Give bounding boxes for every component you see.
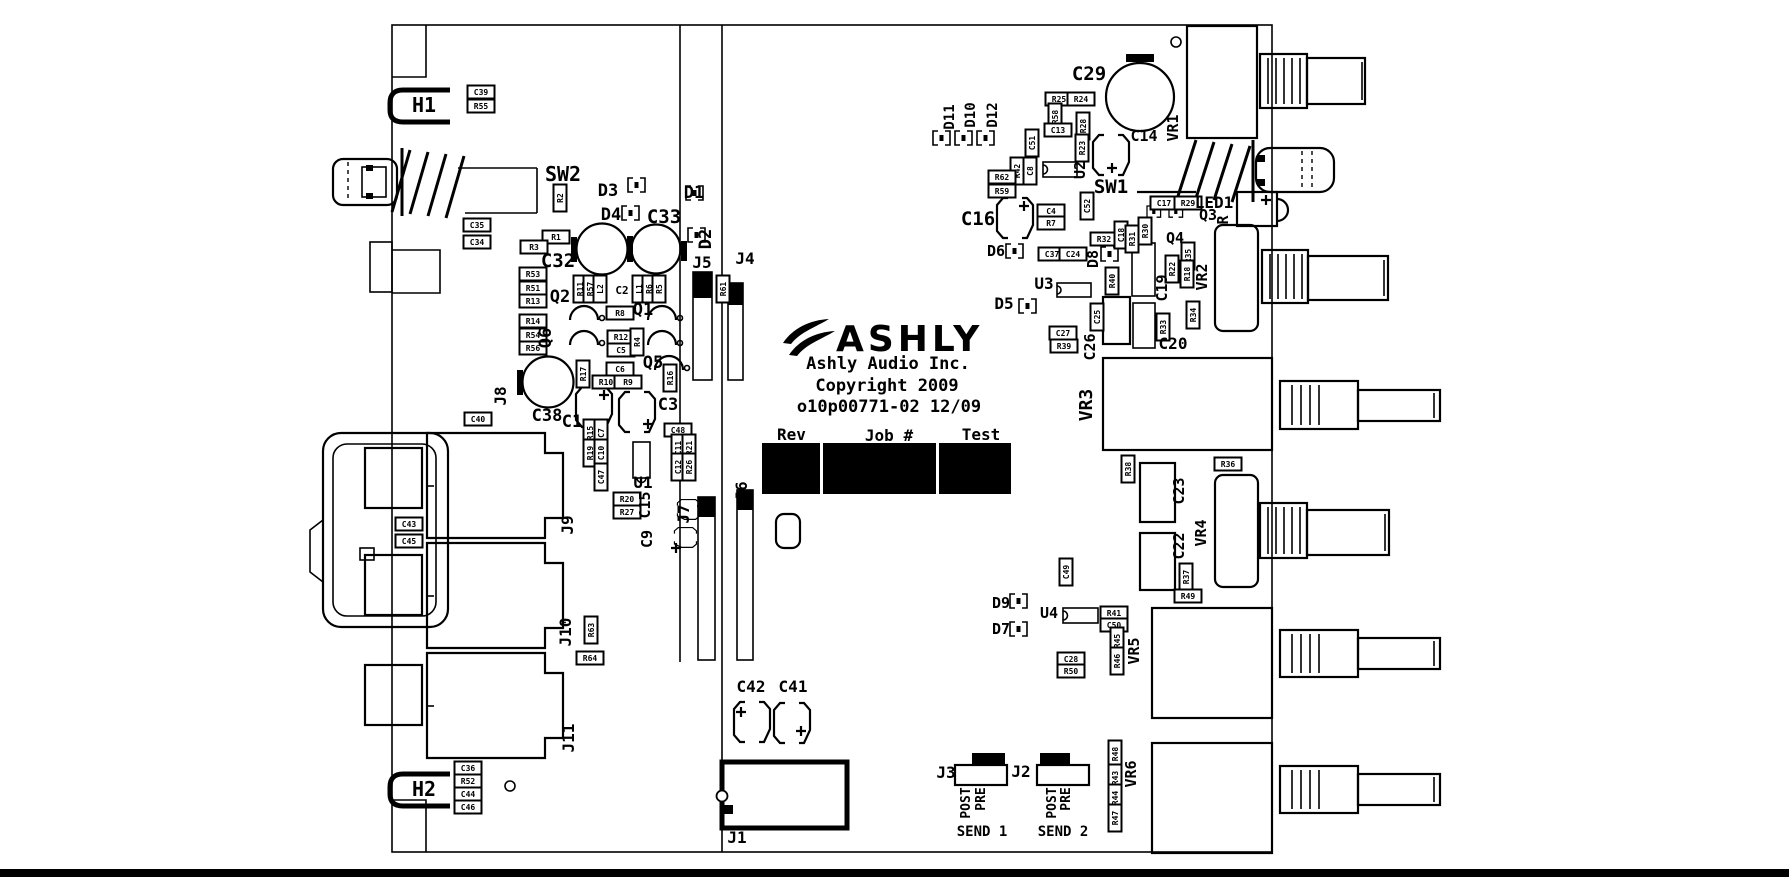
board-edge-slot <box>370 242 440 293</box>
smd-label-r23: R23 <box>1076 135 1089 162</box>
ref-label-d3: D3 <box>598 181 618 201</box>
svg-text:R45: R45 <box>1113 634 1122 649</box>
connector-j1 <box>717 762 848 828</box>
smd-label-l2: L2 <box>594 276 607 303</box>
svg-text:R34: R34 <box>1189 308 1198 323</box>
capacitor-c16-footprint <box>997 198 1033 238</box>
svg-text:R39: R39 <box>1057 342 1072 351</box>
ref-label-c42: C42 <box>737 677 766 696</box>
ref-label-pre: PRE <box>974 787 989 810</box>
svg-text:C40: C40 <box>471 415 486 424</box>
smd-label-r46: R46 <box>1111 648 1124 675</box>
svg-text:R61: R61 <box>719 282 728 297</box>
svg-text:R29: R29 <box>1181 199 1196 208</box>
svg-text:C47: C47 <box>597 470 606 485</box>
smd-label-r17: R17 <box>577 361 590 388</box>
svg-text:C37: C37 <box>1045 250 1060 259</box>
smd-label-r16: R16 <box>664 365 677 392</box>
svg-text:C4: C4 <box>1046 207 1056 216</box>
ref-label-c22: C22 <box>1170 532 1188 559</box>
svg-text:R18: R18 <box>1183 267 1192 282</box>
svg-text:C39: C39 <box>474 88 489 97</box>
ref-label-d4: D4 <box>601 205 621 225</box>
capacitor-c14-footprint <box>1093 135 1129 175</box>
ref-label-c1: C1 <box>562 412 582 432</box>
svg-text:R2: R2 <box>556 193 565 203</box>
svg-text:R37: R37 <box>1182 570 1191 585</box>
svg-text:R40: R40 <box>1108 274 1117 289</box>
svg-text:C49: C49 <box>1062 565 1071 580</box>
svg-text:R14: R14 <box>526 317 541 326</box>
ref-label-q5: Q5 <box>643 353 663 373</box>
svg-text:R63: R63 <box>587 623 596 638</box>
capacitor-c38 <box>517 357 574 408</box>
smd-label-r30: R30 <box>1139 218 1152 245</box>
ref-label-vr3: VR3 <box>1076 389 1097 422</box>
smd-label-r49: R49 <box>1175 590 1202 603</box>
svg-text:C6: C6 <box>615 365 625 374</box>
smd-label-r51: R51 <box>520 282 547 295</box>
ref-label-c38: C38 <box>532 406 563 426</box>
ref-label-c29: C29 <box>1072 63 1106 85</box>
svg-text:R23: R23 <box>1078 141 1087 156</box>
smd-label-c49: C49 <box>1060 559 1073 586</box>
svg-text:R27: R27 <box>620 508 635 517</box>
smd-label-r47: R47 <box>1109 805 1122 832</box>
ref-label-d8: D8 <box>1084 250 1102 268</box>
led1-footprint <box>1237 192 1288 226</box>
ref-label-vr1: VR1 <box>1164 114 1182 141</box>
ref-label-u2: U2 <box>1071 161 1089 179</box>
smd-label-c43: C43 <box>396 518 423 531</box>
ref-label-c16: C16 <box>961 208 995 230</box>
smd-label-r14: R14 <box>520 315 547 328</box>
smd-label-r40: R40 <box>1106 268 1119 295</box>
svg-text:R26: R26 <box>685 460 694 475</box>
svg-text:R22: R22 <box>1168 262 1177 277</box>
ref-label-c41: C41 <box>779 677 808 696</box>
connector-j7 <box>698 497 715 660</box>
ref-label-c19: C19 <box>1153 274 1171 301</box>
svg-text:R13: R13 <box>526 297 541 306</box>
svg-text:C10: C10 <box>597 446 606 461</box>
jumper-j3 <box>955 753 1007 785</box>
ashly-chevron-logo-icon <box>783 319 835 356</box>
ref-label-c32: C32 <box>541 250 575 272</box>
ref-label-j11: J11 <box>559 724 578 753</box>
ref-label-q6: Q6 <box>536 328 556 348</box>
ref-label-j9: J9 <box>558 515 577 534</box>
smd-label-r64: R64 <box>577 652 604 665</box>
svg-text:R64: R64 <box>583 654 598 663</box>
svg-text:R33: R33 <box>1159 320 1168 335</box>
svg-text:R31: R31 <box>1128 232 1137 247</box>
svg-text:R38: R38 <box>1124 462 1133 477</box>
ref-label-d2: D2 <box>696 229 716 249</box>
smd-label-c39: C39 <box>468 86 495 99</box>
smd-label-r39: R39 <box>1051 340 1078 353</box>
smd-label-c52: C52 <box>1081 193 1094 220</box>
smd-label-c27: C27 <box>1050 327 1077 340</box>
toggle-switch-sw2 <box>333 148 537 218</box>
smd-label-r18: R18 <box>1181 261 1194 288</box>
capacitor-c41-footprint <box>774 703 810 743</box>
ref-label-vr6: VR6 <box>1122 760 1140 787</box>
ref-label-send-2: SEND 2 <box>1038 824 1089 840</box>
ic-u3 <box>1057 283 1091 297</box>
ref-label-d10: D10 <box>963 102 979 127</box>
ref-label-j5: J5 <box>692 253 711 272</box>
ref-label-j2: J2 <box>1011 762 1030 781</box>
svg-text:R10: R10 <box>599 378 614 387</box>
smd-label-c35: C35 <box>464 219 491 232</box>
smd-label-r59: R59 <box>989 185 1016 198</box>
ref-label-u3: U3 <box>1034 274 1053 293</box>
svg-text:R20: R20 <box>620 495 635 504</box>
svg-text:R59: R59 <box>995 187 1010 196</box>
svg-text:R44: R44 <box>1111 791 1120 806</box>
ref-label-d11: D11 <box>942 104 958 129</box>
bottom-border-bar <box>0 869 1789 877</box>
svg-text:L2: L2 <box>596 284 605 294</box>
company-text: Ashly Audio Inc. <box>806 354 970 374</box>
smd-label-c36: C36 <box>455 762 482 775</box>
svg-text:C28: C28 <box>1064 655 1079 664</box>
smd-label-c10: C10 <box>595 440 608 467</box>
ref-label-sw2: SW2 <box>545 162 581 186</box>
smd-label-c17: C17 <box>1151 197 1178 210</box>
svg-text:R46: R46 <box>1113 654 1122 669</box>
svg-text:R49: R49 <box>1181 592 1196 601</box>
ref-label-j3: J3 <box>936 763 955 782</box>
ref-label-c9: C9 <box>638 530 656 548</box>
svg-text:C45: C45 <box>402 537 417 546</box>
smd-label-r61: R61 <box>717 276 730 303</box>
smd-label-r2: R2 <box>554 185 567 212</box>
svg-text:C17: C17 <box>1157 199 1172 208</box>
ref-label-q4: Q4 <box>1166 229 1184 247</box>
smd-label-r26: R26 <box>683 454 696 481</box>
connector-j5 <box>693 272 712 380</box>
pot-vr4 <box>1215 475 1389 587</box>
smd-label-r31: R31 <box>1126 226 1139 253</box>
ic-u4 <box>1063 608 1098 623</box>
svg-text:C5: C5 <box>616 346 626 355</box>
smd-label-r50: R50 <box>1058 665 1085 678</box>
capacitor-c9-footprint <box>671 528 696 553</box>
pcb-assembly-drawing: { "logo": { "brand": "ASHLY", "company":… <box>0 0 1789 884</box>
svg-text:R9: R9 <box>623 378 633 387</box>
rev-job-test-fill-boxes <box>762 443 1011 548</box>
svg-text:R52: R52 <box>461 777 476 786</box>
smd-label-r55: R55 <box>468 100 495 113</box>
jack-j10 <box>365 543 563 648</box>
svg-text:R3: R3 <box>529 243 539 252</box>
ref-label-d7: D7 <box>992 620 1010 638</box>
svg-text:R36: R36 <box>1221 460 1236 469</box>
smd-label-c44: C44 <box>455 788 482 801</box>
svg-text:R41: R41 <box>1107 609 1122 618</box>
svg-text:R50: R50 <box>1064 667 1079 676</box>
ref-label-vr2: VR2 <box>1193 263 1211 290</box>
svg-text:C8: C8 <box>1026 166 1035 176</box>
svg-text:R58: R58 <box>1051 110 1060 125</box>
svg-text:R51: R51 <box>526 284 541 293</box>
smd-label-r37: R37 <box>1180 564 1193 591</box>
svg-text:C43: C43 <box>402 520 417 529</box>
svg-text:R17: R17 <box>579 367 588 382</box>
svg-text:R1: R1 <box>551 233 561 242</box>
smd-label-r63: R63 <box>585 617 598 644</box>
ref-label-c26: C26 <box>1081 333 1099 360</box>
smd-label-c46: C46 <box>455 801 482 814</box>
smd-label-r8: R8 <box>607 307 634 320</box>
smd-label-r13: R13 <box>520 295 547 308</box>
svg-text:C36: C36 <box>461 764 476 773</box>
connector-j6 <box>737 490 753 660</box>
ref-label-j1: J1 <box>727 828 746 847</box>
svg-text:R5: R5 <box>655 284 664 294</box>
pot-vr5 <box>1152 608 1440 718</box>
ref-label-q2: Q2 <box>550 287 570 307</box>
board-outline <box>392 25 1272 852</box>
smd-label-c34: C34 <box>464 236 491 249</box>
smd-label-c6: C6 <box>607 363 634 376</box>
svg-text:R16: R16 <box>666 371 675 386</box>
smd-label-r32: R32 <box>1091 233 1118 246</box>
ref-label-d5: D5 <box>994 294 1013 313</box>
ref-label-j7: J7 <box>674 504 693 523</box>
svg-text:C52: C52 <box>1083 199 1092 214</box>
ref-label-send-1: SEND 1 <box>957 824 1008 840</box>
ref-label-d6: D6 <box>987 242 1005 260</box>
smd-label-r52: R52 <box>455 775 482 788</box>
ref-label-d9: D9 <box>992 594 1010 612</box>
ref-label-c15: C15 <box>636 491 654 518</box>
smd-label-c24: C24 <box>1060 248 1087 261</box>
svg-text:R48: R48 <box>1111 747 1120 762</box>
ref-label-c2: C2 <box>615 284 628 297</box>
svg-text:R53: R53 <box>526 270 541 279</box>
ref-label-j10: J10 <box>556 618 575 647</box>
smd-label-c40: C40 <box>465 413 492 426</box>
ref-label-post: POST <box>1045 787 1060 818</box>
capacitor-c3-footprint <box>619 392 655 432</box>
ref-label-pre: PRE <box>1059 787 1074 810</box>
ref-label-u1: U1 <box>633 473 652 492</box>
toggle-switch-sw1 <box>1137 140 1334 202</box>
ref-label-d12: D12 <box>985 102 1001 127</box>
rev-field-label: Rev <box>777 425 806 444</box>
ref-label-c14: C14 <box>1130 127 1157 145</box>
ref-label-q1: Q1 <box>633 300 653 320</box>
ref-label-j8: J8 <box>491 386 510 405</box>
part-number-text: o10p00771-02 12/09 <box>797 397 981 417</box>
jack-j11 <box>365 653 563 758</box>
capacitor-c42-footprint <box>734 702 770 742</box>
ashly-logo-block: ASHLY Ashly Audio Inc. Copyright 2009 o1… <box>777 319 1000 445</box>
svg-text:C44: C44 <box>461 790 476 799</box>
smd-label-r36: R36 <box>1215 458 1242 471</box>
ref-label-c20: C20 <box>1159 334 1188 353</box>
ref-label-j4: J4 <box>735 249 754 268</box>
svg-text:R28: R28 <box>1079 119 1088 134</box>
ref-label-h2: H2 <box>412 777 436 801</box>
svg-text:C46: C46 <box>461 803 476 812</box>
smd-label-c8: C8 <box>1024 158 1037 185</box>
ref-label-c23: C23 <box>1170 477 1188 504</box>
smd-label-r38: R38 <box>1122 456 1135 483</box>
svg-text:R43: R43 <box>1111 771 1120 786</box>
svg-text:C51: C51 <box>1028 136 1037 151</box>
ref-label-c3: C3 <box>658 395 678 415</box>
pot-vr3 <box>1103 358 1440 450</box>
svg-text:R8: R8 <box>615 309 625 318</box>
svg-text:R4: R4 <box>633 337 642 347</box>
svg-text:C7: C7 <box>597 428 606 438</box>
ref-label-r: R <box>1214 215 1232 225</box>
svg-text:C25: C25 <box>1093 310 1102 325</box>
capacitor-c33 <box>632 225 688 274</box>
ref-label-vr4: VR4 <box>1192 519 1210 546</box>
pot-vr6 <box>1152 743 1440 853</box>
ref-label-j6: J6 <box>732 481 751 500</box>
svg-text:C24: C24 <box>1066 250 1081 259</box>
ref-label-c33: C33 <box>647 206 681 228</box>
smd-label-c51: C51 <box>1026 130 1039 157</box>
copyright-text: Copyright 2009 <box>815 376 958 396</box>
pot-vr1 <box>1171 26 1365 138</box>
svg-text:R55: R55 <box>474 102 489 111</box>
smd-label-r9: R9 <box>615 376 642 389</box>
ref-label-post: POST <box>959 787 974 818</box>
svg-text:R12: R12 <box>614 333 629 342</box>
ref-label-sw1: SW1 <box>1094 176 1128 198</box>
smd-label-r4: R4 <box>631 329 644 356</box>
test-field-label: Test <box>962 425 1001 444</box>
ref-label-h1: H1 <box>412 93 436 117</box>
svg-text:C13: C13 <box>1051 126 1066 135</box>
capacitor-c32 <box>571 224 633 275</box>
ref-label-d1: D1 <box>684 183 704 203</box>
smd-label-r5: R5 <box>653 276 666 303</box>
job-field-label: Job # <box>865 426 914 445</box>
svg-text:C34: C34 <box>470 238 485 247</box>
svg-text:C35: C35 <box>470 221 485 230</box>
smd-label-r7: R7 <box>1038 217 1065 230</box>
svg-text:C27: C27 <box>1056 329 1071 338</box>
component-reference-labels: H1SW2D3D4C33D1D2C32J5J4Q2C2Q1Q6Q5J8C38C1… <box>412 63 1233 847</box>
jumper-j2 <box>1037 753 1089 785</box>
pcb-silkscreen-canvas: ASHLY Ashly Audio Inc. Copyright 2009 o1… <box>0 0 1789 884</box>
smd-label-r34: R34 <box>1187 302 1200 329</box>
smd-label-r48: R48 <box>1109 741 1122 768</box>
smd-label-c47: C47 <box>595 464 608 491</box>
ref-label-u4: U4 <box>1040 604 1058 622</box>
smd-label-r62: R62 <box>989 171 1016 184</box>
smd-label-c13: C13 <box>1045 124 1072 137</box>
ref-label-vr5: VR5 <box>1125 637 1143 664</box>
smd-label-c25: C25 <box>1091 304 1104 331</box>
smd-label-c45: C45 <box>396 535 423 548</box>
svg-text:R47: R47 <box>1111 811 1120 826</box>
fiducial-near-h2 <box>505 781 515 791</box>
svg-text:R62: R62 <box>995 173 1010 182</box>
svg-text:R30: R30 <box>1141 224 1150 239</box>
svg-text:R7: R7 <box>1046 219 1056 228</box>
svg-text:R32: R32 <box>1097 235 1112 244</box>
smd-label-r24: R24 <box>1068 93 1095 106</box>
svg-text:R24: R24 <box>1074 95 1089 104</box>
pot-vr2 <box>1215 225 1388 331</box>
